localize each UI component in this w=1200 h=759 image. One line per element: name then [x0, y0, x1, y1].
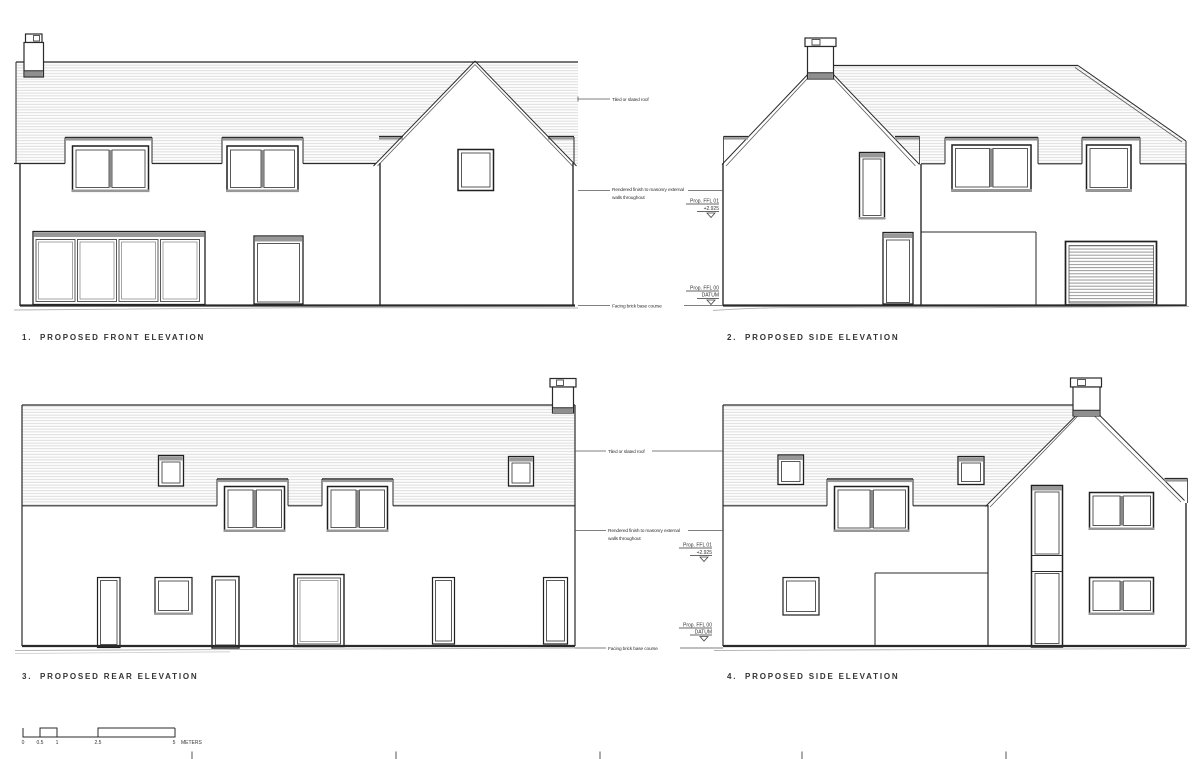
- elevation-front-drawing: [14, 34, 578, 310]
- elevation-3-title: PROPOSED REAR ELEVATION: [40, 672, 198, 681]
- window: [72, 146, 150, 192]
- door: [212, 577, 239, 649]
- annotations-bottom: Tiled or slated roof Rendered finish to …: [575, 449, 723, 652]
- window: [859, 153, 886, 220]
- window: [783, 578, 819, 616]
- elevation-3-number: 3.: [22, 672, 32, 681]
- walls-annotation-line2: walls throughout: [612, 195, 645, 201]
- chimney: [1071, 378, 1102, 416]
- elevation-4-number: 4.: [727, 672, 737, 681]
- ground-line: [714, 649, 1190, 651]
- level-marker-ffl00: Prop. FFL 00 DATUM: [686, 286, 719, 305]
- scale-label: 0: [22, 740, 25, 746]
- scale-unit-label: METERS: [181, 740, 203, 746]
- level-marker-ffl00: Prop. FFL 00 DATUM: [679, 623, 712, 642]
- chimney: [550, 379, 576, 414]
- chimney: [24, 34, 44, 77]
- scale-label: 0.5: [37, 740, 44, 746]
- level-marker-ffl01: Prop. FFL 01 +2.925: [679, 543, 712, 562]
- gable-window: [458, 150, 494, 191]
- base-annotation: Facing brick base course: [612, 304, 662, 310]
- elevation-1-title: PROPOSED FRONT ELEVATION: [40, 333, 205, 342]
- glazed-door: [294, 575, 344, 647]
- walls-annotation-line2: walls throughout: [608, 536, 641, 542]
- roof-annotation: Tiled or slated roof: [608, 449, 645, 455]
- level-triangle-icon: [700, 637, 708, 642]
- roof-hatch: [22, 406, 575, 507]
- elevation-titles: 1. PROPOSED FRONT ELEVATION 2. PROPOSED …: [22, 333, 899, 681]
- window: [544, 578, 568, 645]
- window: [1089, 493, 1155, 530]
- elevation-2-number: 2.: [727, 333, 737, 342]
- svg-text:+2.925: +2.925: [697, 550, 713, 556]
- sliding-glazed-doors: [33, 232, 205, 305]
- window: [327, 487, 389, 532]
- elevations-drawing: Tiled or slated roof Rendered finish to …: [0, 0, 1200, 759]
- window: [1089, 578, 1155, 615]
- window: [951, 145, 1032, 192]
- ground-line: [713, 307, 1189, 311]
- window: [226, 146, 299, 192]
- scale-label: 1: [56, 740, 59, 746]
- scale-label: 2.5: [95, 740, 102, 746]
- ground-line: [14, 308, 578, 311]
- scale-bar-outline: [23, 728, 175, 737]
- rooflight: [778, 455, 804, 485]
- svg-text:+2.925: +2.925: [704, 206, 720, 212]
- garage-door: [1066, 242, 1157, 306]
- chimney: [805, 38, 836, 79]
- elevation-2-title: PROPOSED SIDE ELEVATION: [745, 333, 899, 342]
- walls-annotation-line1: Rendered finish to masonry external: [612, 187, 684, 193]
- window: [834, 487, 910, 532]
- elevation-rear-drawing: [15, 379, 576, 654]
- level-marker-ffl01: Prop. FFL 01 +2.925: [686, 199, 719, 218]
- elevation-1-number: 1.: [22, 333, 32, 342]
- svg-text:DATUM: DATUM: [702, 293, 719, 299]
- window: [98, 578, 121, 648]
- level-triangle-icon: [707, 213, 715, 218]
- svg-text:Prop. FFL 01: Prop. FFL 01: [690, 199, 719, 205]
- level-triangle-icon: [700, 557, 708, 562]
- drawing-sheet: Tiled or slated roof Rendered finish to …: [0, 0, 1200, 759]
- door: [254, 236, 303, 304]
- level-triangle-icon: [707, 300, 715, 305]
- rooflight: [509, 457, 534, 487]
- window: [224, 487, 286, 532]
- window: [154, 578, 193, 615]
- roof-annotation: Tiled or slated roof: [612, 97, 649, 103]
- svg-text:DATUM: DATUM: [695, 630, 712, 636]
- annotations-top: Tiled or slated roof Rendered finish to …: [578, 97, 723, 310]
- svg-text:Prop. FFL 00: Prop. FFL 00: [683, 623, 712, 629]
- base-annotation: Facing brick base course: [608, 646, 658, 652]
- door: [883, 233, 913, 305]
- svg-text:Prop. FFL 00: Prop. FFL 00: [690, 286, 719, 292]
- elevation-4-title: PROPOSED SIDE ELEVATION: [745, 672, 899, 681]
- sheet-border-ticks: [192, 752, 1006, 759]
- elevation-side4-drawing: [714, 378, 1191, 651]
- elevation-side2-drawing: [713, 38, 1189, 311]
- rooflight: [159, 456, 184, 487]
- window: [433, 578, 455, 645]
- tall-glazing: [1032, 486, 1063, 648]
- ground-line: [15, 648, 575, 651]
- scale-label: 5: [173, 740, 176, 746]
- svg-text:Prop. FFL 01: Prop. FFL 01: [683, 543, 712, 549]
- walls-annotation-line1: Rendered finish to masonry external: [608, 528, 680, 534]
- rooflight: [958, 457, 984, 485]
- window: [1086, 145, 1133, 192]
- scale-bar: 0 0.5 1 2.5 5 METERS: [22, 728, 203, 746]
